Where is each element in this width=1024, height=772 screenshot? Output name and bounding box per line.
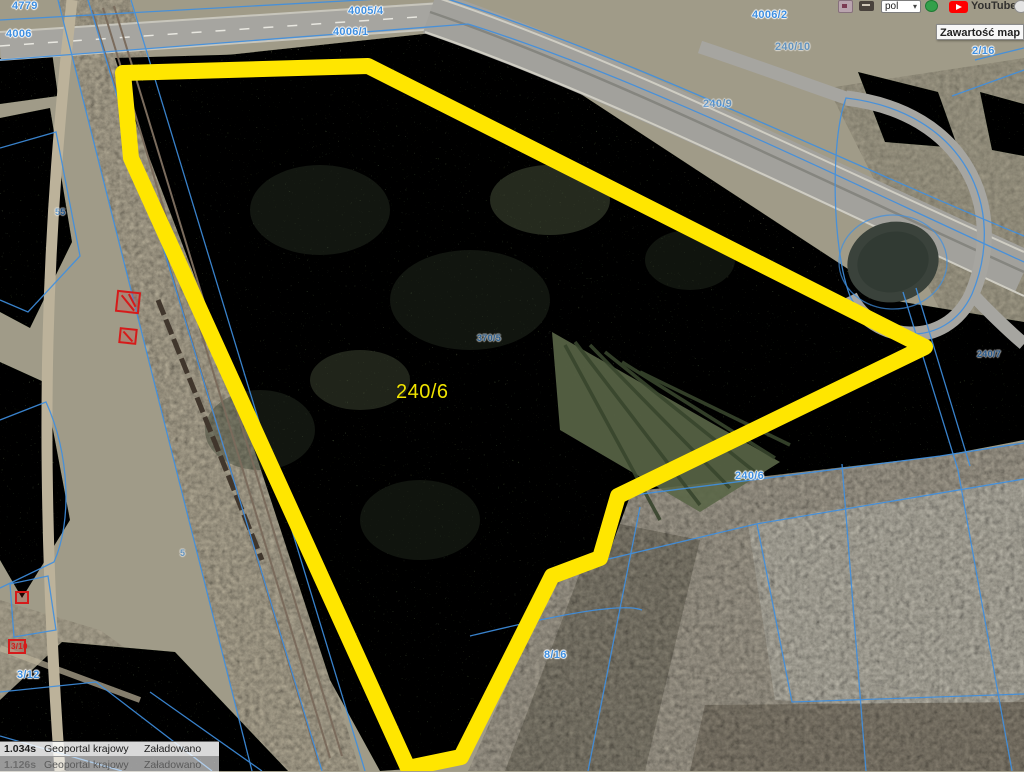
load-time: 1.126s bbox=[4, 759, 44, 771]
load-status: Załadowano bbox=[144, 759, 201, 771]
profile-circle-icon[interactable] bbox=[1014, 0, 1024, 13]
parcel-label: 240/10 bbox=[775, 42, 810, 53]
layer-source: Geoportal krajowy bbox=[44, 759, 144, 771]
extension-icon[interactable] bbox=[838, 0, 853, 13]
red-marker-label: 3/10 bbox=[11, 643, 28, 651]
parcel-label: 370/5 bbox=[477, 334, 501, 343]
parcel-label: 2/16 bbox=[972, 46, 995, 57]
highlighted-parcel-label: 240/6 bbox=[396, 382, 449, 402]
load-time: 1.034s bbox=[4, 743, 44, 755]
status-panel: 1.034s Geoportal krajowy Załadowano 1.12… bbox=[0, 741, 219, 772]
map-contents-tooltip: Zawartość map bbox=[936, 24, 1024, 40]
parcel-label: 4779 bbox=[12, 1, 38, 12]
parcel-label: 240/6 bbox=[735, 471, 764, 482]
chevron-down-icon: ▾ bbox=[913, 3, 917, 11]
parcel-label: 240/9 bbox=[703, 99, 732, 110]
youtube-icon[interactable] bbox=[949, 1, 968, 13]
parcel-label: 5 bbox=[180, 549, 185, 558]
parcel-label: 4006/2 bbox=[752, 10, 787, 21]
bookmark-icon[interactable] bbox=[859, 1, 874, 11]
parcel-label: 55 bbox=[55, 208, 66, 217]
language-select[interactable]: pol ▾ bbox=[881, 0, 921, 13]
status-row: 1.034s Geoportal krajowy Załadowano bbox=[0, 742, 219, 757]
parcel-label: 240/7 bbox=[977, 350, 1001, 359]
language-select-value: pol bbox=[885, 2, 913, 12]
status-dot-icon[interactable] bbox=[925, 0, 938, 12]
status-row: 1.126s Geoportal krajowy Załadowano bbox=[0, 757, 219, 772]
parcel-label: 4006/1 bbox=[333, 27, 368, 38]
map-canvas[interactable] bbox=[0, 0, 1024, 771]
parcel-label: 8/16 bbox=[544, 650, 567, 661]
parcel-label: 4005/4 bbox=[348, 6, 383, 17]
youtube-bookmark-label[interactable]: YouTube bbox=[971, 0, 1016, 12]
parcel-label: 4006 bbox=[6, 29, 32, 40]
layer-source: Geoportal krajowy bbox=[44, 743, 144, 755]
parcel-label: 3/12 bbox=[17, 670, 40, 681]
load-status: Załadowano bbox=[144, 743, 201, 755]
